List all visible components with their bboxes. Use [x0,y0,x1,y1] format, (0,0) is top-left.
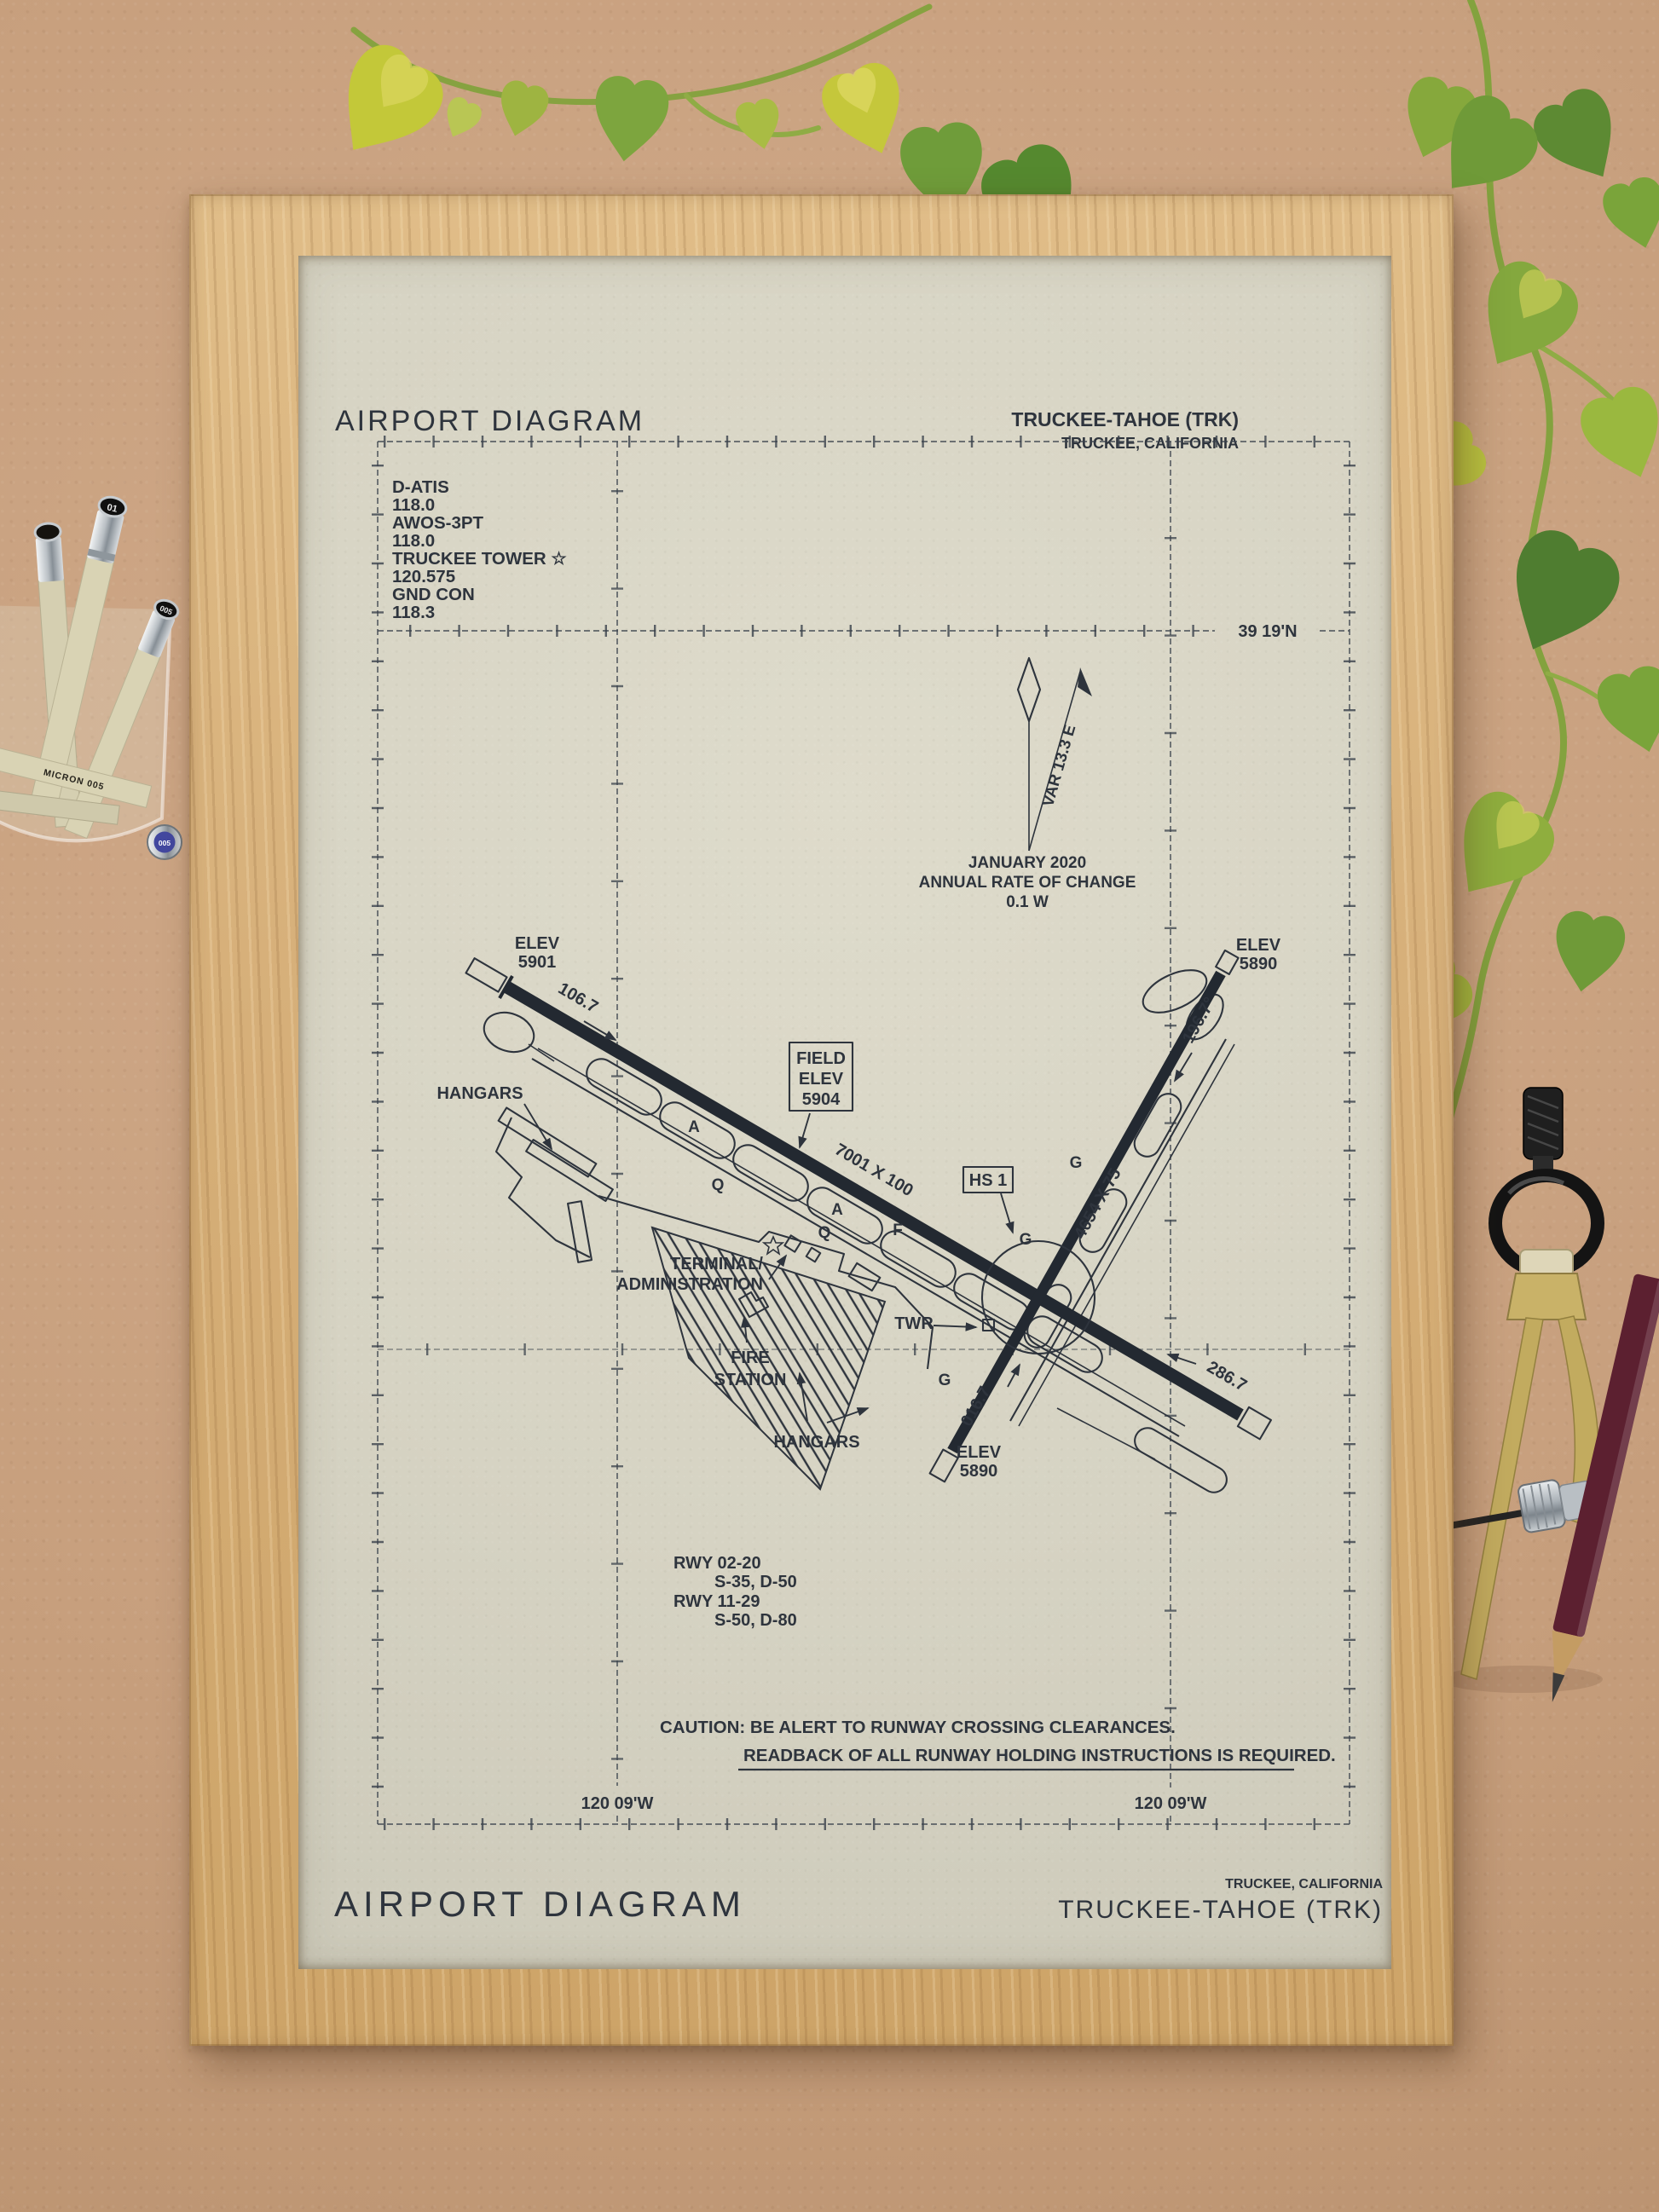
rwy-11-29-dimensions: 7001 X 100 [831,1141,916,1201]
freq-line: 118.3 [392,603,435,622]
taxiway-letter: A [831,1201,843,1219]
hot-spot-box: HS 1 [963,1167,1013,1193]
taxiway-letter: G [1020,1231,1032,1249]
taxiway-letter: Q [818,1224,831,1242]
field-elev-box: FIELD ELEV 5904 [789,1042,853,1111]
pen-cup: 01 005 MICRON 005 005 [0,477,205,878]
pen-blue-cap-end: 005 [147,825,182,859]
longitude-label-right: 120 09'W [1135,1794,1207,1813]
airport-name-top: TRUCKEE-TAHOE (TRK) [1011,408,1239,430]
pencil [1449,1176,1659,1739]
freq-line: 120.575 [392,567,455,586]
hangars-label-nw: HANGARS [436,1084,523,1103]
caution-line-1: CAUTION: BE ALERT TO RUNWAY CROSSING CLE… [660,1718,1176,1737]
freq-line: 118.0 [392,531,435,551]
airport-city-bottom: TRUCKEE, CALIFORNIA [1225,1877,1383,1891]
taxiway-letter: Q [712,1176,725,1194]
heading-rwy29: 286.7 [1204,1358,1250,1395]
elev-value-ne: 5890 [1240,955,1278,973]
poster-title-bottom: AIRPORT DIAGRAM [334,1884,746,1924]
taxiway-letter: G [1070,1154,1083,1172]
hot-spot-label: HS 1 [969,1171,1007,1190]
terminal-label-1: TERMINAL/ [670,1255,763,1273]
freq-line: D-ATIS [392,477,449,497]
runway-data-line: S-50, D-80 [714,1611,797,1630]
variation-date: JANUARY 2020 [968,854,1086,872]
poster-title-top: AIRPORT DIAGRAM [335,405,645,437]
freq-line: 118.0 [392,495,435,515]
caution-line-2: READBACK OF ALL RUNWAY HOLDING INSTRUCTI… [743,1746,1336,1765]
runway-data-line: S-35, D-50 [714,1573,797,1591]
elev-value-s: 5890 [960,1462,998,1481]
caution-block: CAUTION: BE ALERT TO RUNWAY CROSSING CLE… [660,1718,1336,1770]
freq-line: AWOS-3PT [392,513,484,533]
frequency-box: D-ATIS 118.0 AWOS-3PT 118.0 TRUCKEE TOWE… [392,477,567,622]
runway-data-block: RWY 02-20 S-35, D-50 RWY 11-29 S-50, D-8… [673,1554,797,1630]
taxiway-letter: G [939,1372,951,1389]
variation-rate-value: 0.1 W [1006,893,1049,911]
pencil-tip-wood [1540,1631,1584,1694]
elev-label-s: ELEV [957,1443,1002,1462]
fire-label-2: STATION [714,1371,787,1389]
runway-data-line: RWY 02-20 [673,1554,761,1573]
airport-city-top: TRUCKEE, CALIFORNIA [1061,435,1239,452]
longitude-label-left: 120 09'W [581,1794,654,1813]
heading-rwy20: 196.7° [1179,994,1220,1046]
heading-rwy02: 016.7 [957,1383,995,1429]
field-elev-line: FIELD [796,1049,846,1068]
photo-scene: 01 005 MICRON 005 005 [0,0,1659,2212]
beacon-star-icon [764,1237,783,1254]
runway-11-29 [466,958,1271,1439]
chart-border [378,442,1350,1824]
field-elev-line: ELEV [799,1070,844,1089]
taxiway-letter: F [893,1222,903,1239]
fire-label-1: FIRE [731,1349,770,1367]
terminal-label-2: ADMINISTRATION [616,1275,763,1294]
airport-name-bottom: TRUCKEE-TAHOE (TRK) [1058,1896,1383,1924]
runway-data-line: RWY 11-29 [673,1592,760,1611]
hangars-label-s: HANGARS [773,1433,859,1452]
picture-frame: AIRPORT DIAGRAM TRUCKEE-TAHOE (TRK) TRUC… [189,194,1454,2046]
variation-label: VAR 13.3 E [1039,723,1079,809]
pen-cap-label: 005 [159,839,171,847]
pencil-body [1552,1273,1659,1638]
latitude-label: 39 19'N [1238,622,1297,641]
field-elev-line: 5904 [802,1090,841,1109]
freq-line: GND CON [392,585,475,604]
heading-rwy11: 106.7 [555,979,601,1017]
poster-paper: AIRPORT DIAGRAM TRUCKEE-TAHOE (TRK) TRUC… [298,256,1391,1969]
taxiway-letter: A [688,1118,700,1136]
compass-handle [1523,1088,1563,1178]
pencil-lead [1546,1672,1564,1703]
variation-rate-caption: ANNUAL RATE OF CHANGE [919,874,1136,892]
elev-value-nw: 5901 [518,953,557,972]
tower-label: TWR [894,1314,934,1333]
elev-label-ne: ELEV [1236,936,1281,955]
elev-label-nw: ELEV [515,934,560,953]
airport-diagram-poster: AIRPORT DIAGRAM TRUCKEE-TAHOE (TRK) TRUC… [298,256,1391,1969]
hangar-field [499,1108,994,1489]
magnetic-north-barb [1078,667,1092,696]
freq-line: TRUCKEE TOWER ☆ [392,549,567,569]
